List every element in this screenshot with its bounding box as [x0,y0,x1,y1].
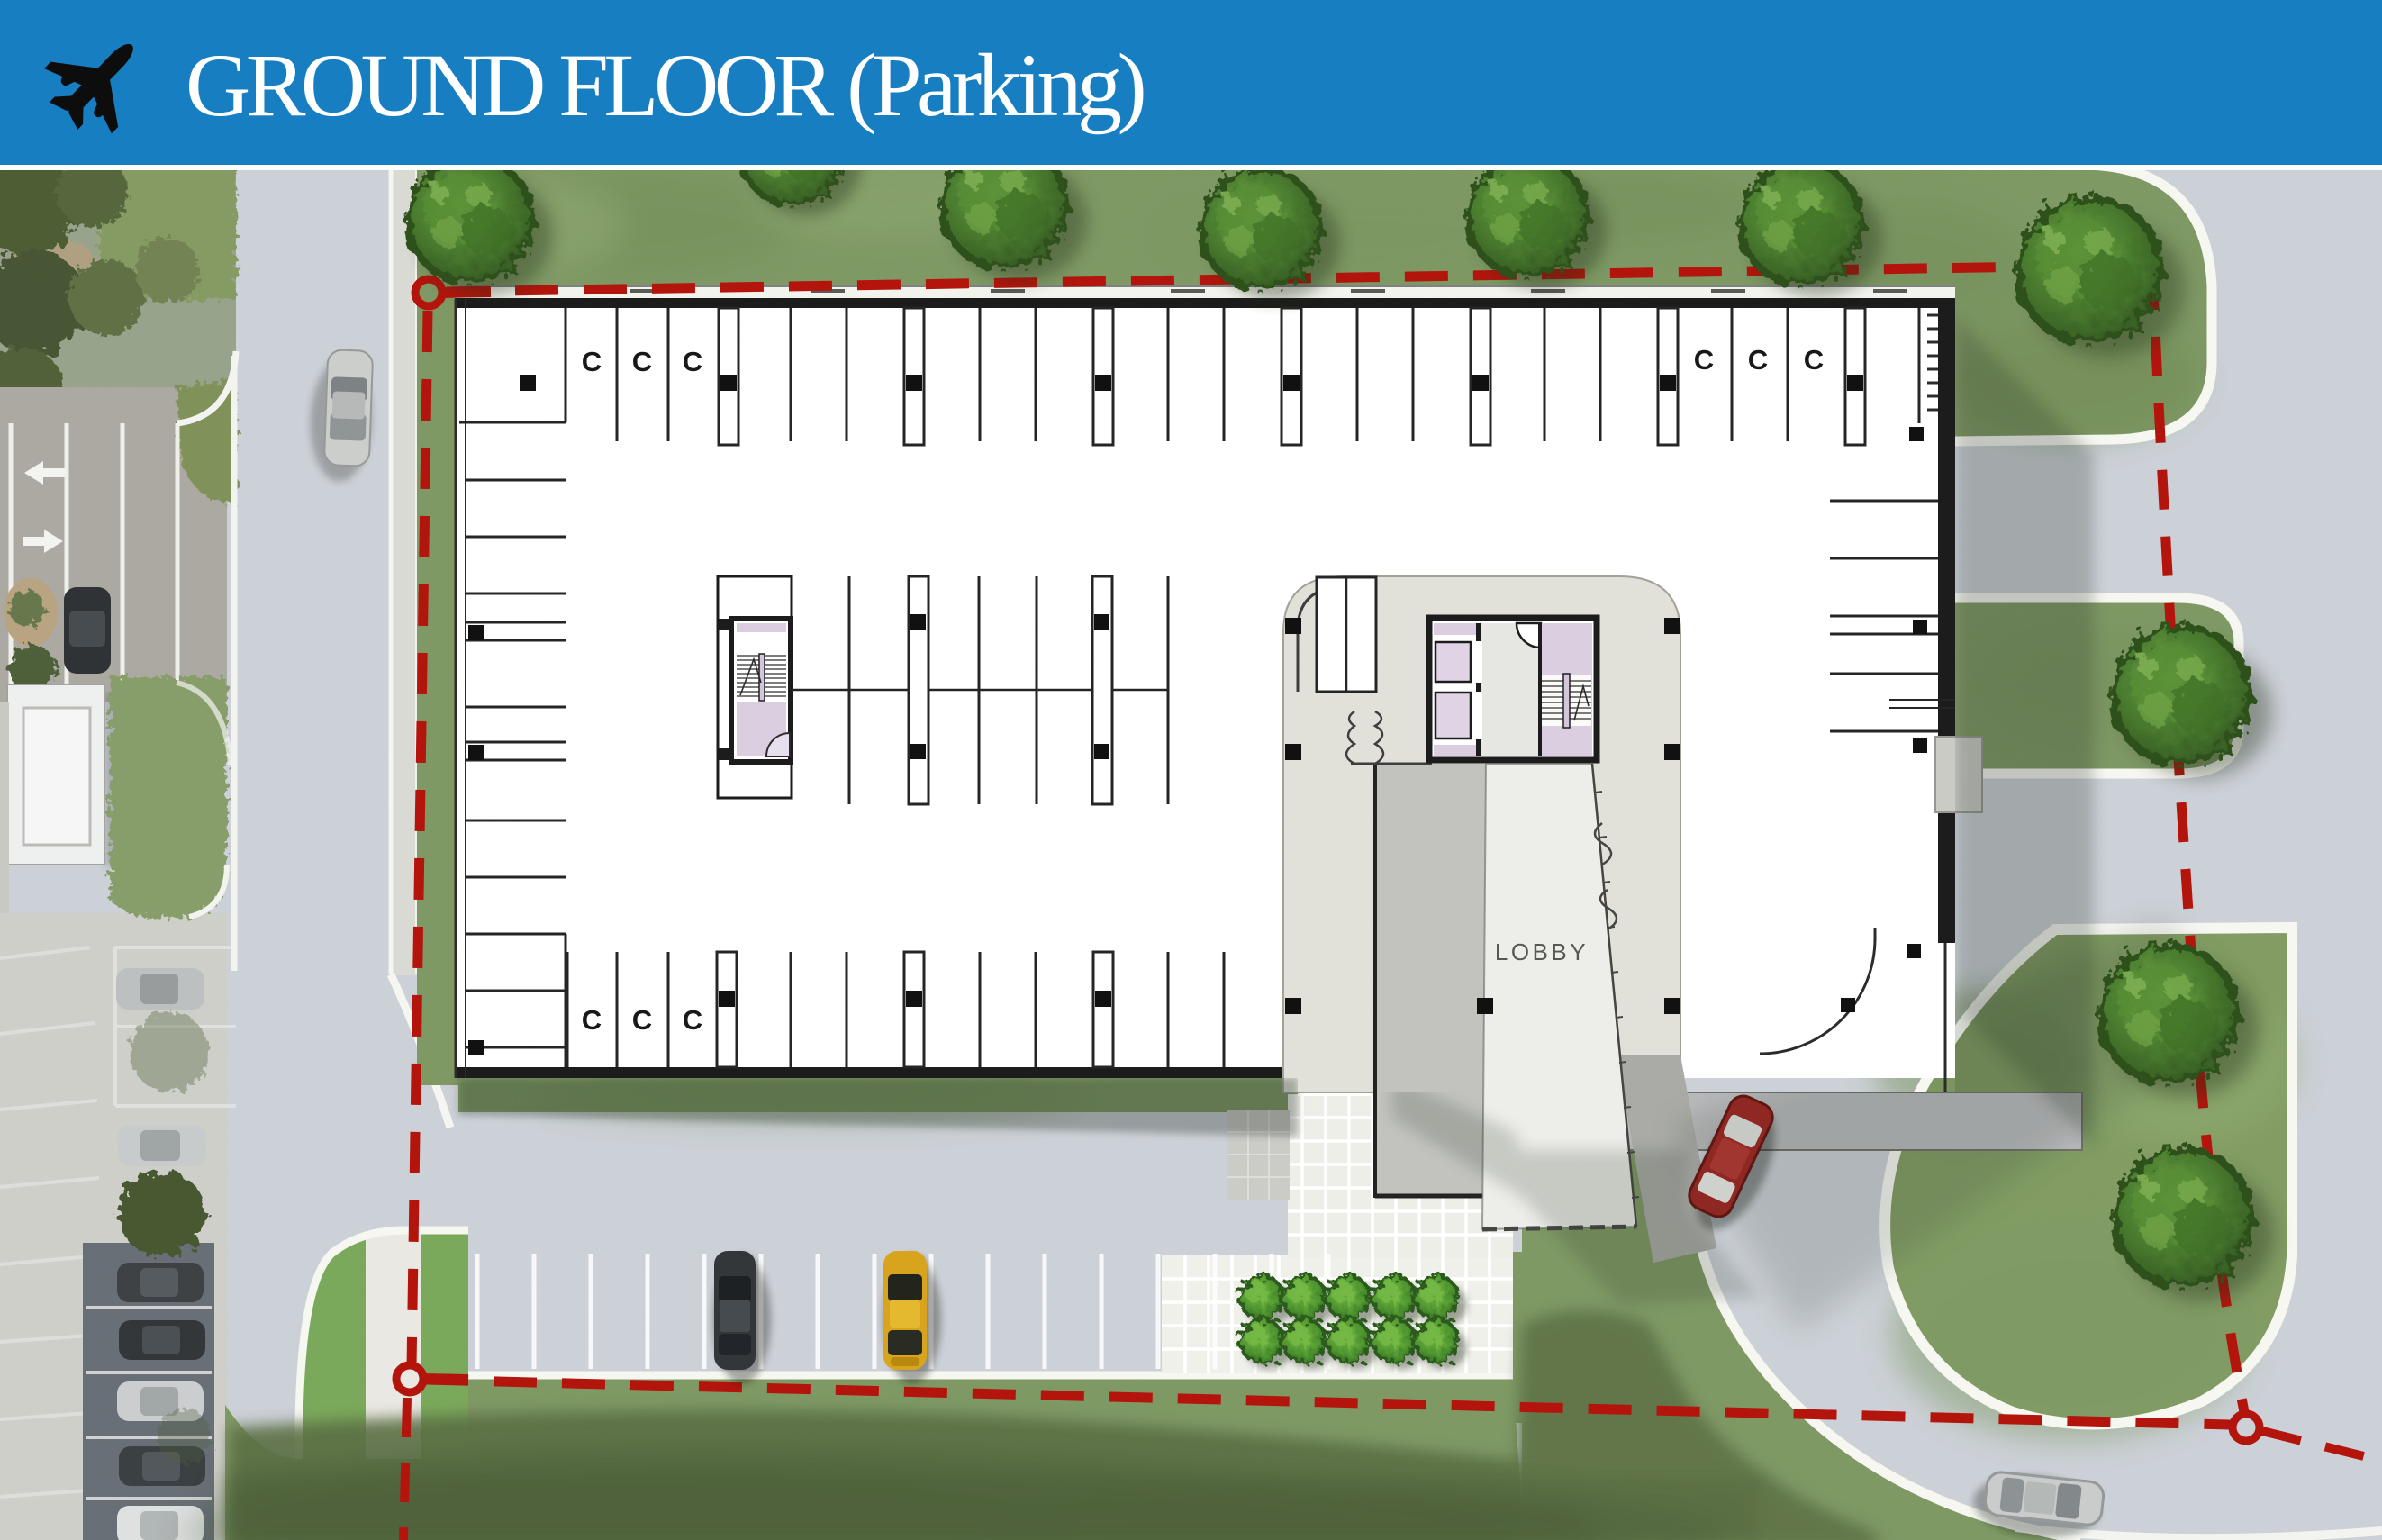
svg-text:GROUND FLOOR (Parking): GROUND FLOOR (Parking) [186,35,1144,135]
